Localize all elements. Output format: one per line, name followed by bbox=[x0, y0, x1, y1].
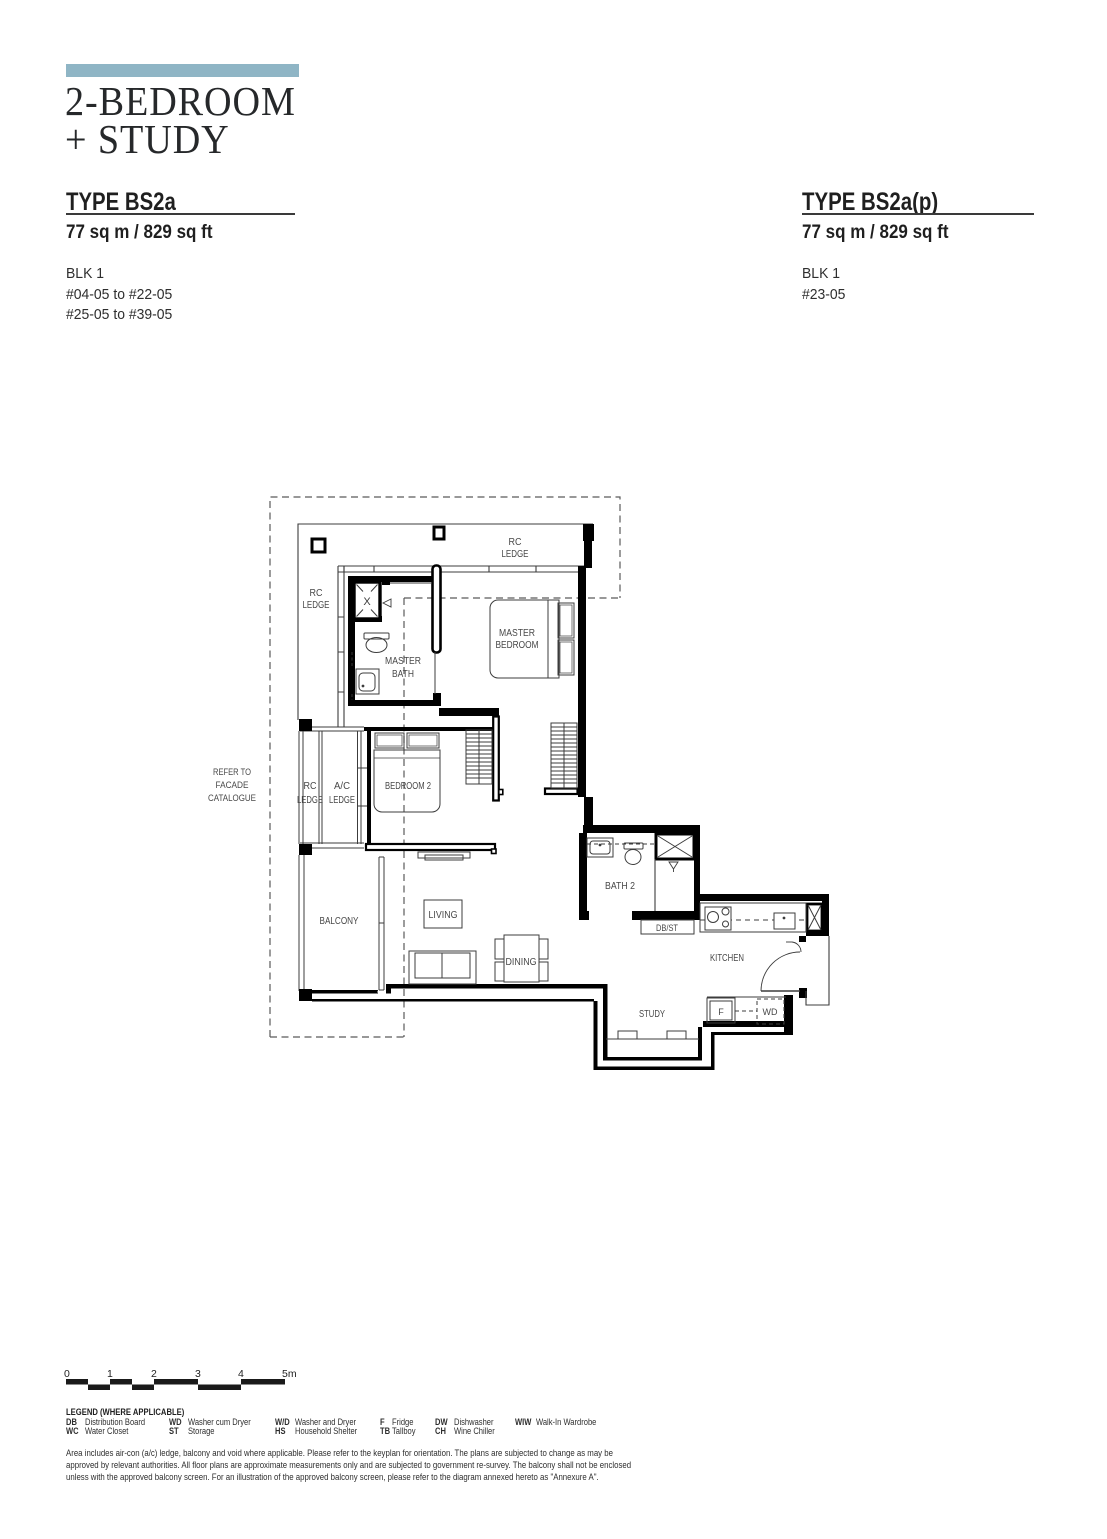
svg-text:3: 3 bbox=[195, 1368, 201, 1380]
svg-text:KITCHEN: KITCHEN bbox=[710, 953, 744, 964]
svg-text:A/C: A/C bbox=[334, 781, 350, 792]
svg-text:RC: RC bbox=[310, 588, 323, 599]
svg-text:2: 2 bbox=[151, 1368, 157, 1380]
svg-text:RC: RC bbox=[509, 537, 522, 548]
svg-text:1: 1 bbox=[107, 1368, 113, 1380]
svg-text:4: 4 bbox=[238, 1368, 244, 1380]
svg-text:F: F bbox=[718, 1007, 724, 1017]
svg-text:STUDY: STUDY bbox=[639, 1009, 665, 1020]
svg-text:5m: 5m bbox=[282, 1368, 297, 1380]
svg-text:X: X bbox=[363, 596, 371, 608]
svg-text:CATALOGUE: CATALOGUE bbox=[208, 793, 256, 803]
svg-text:MASTER: MASTER bbox=[499, 628, 535, 639]
svg-text:RC: RC bbox=[304, 781, 317, 792]
svg-text:BEDROOM: BEDROOM bbox=[496, 640, 539, 651]
svg-text:BATH: BATH bbox=[392, 669, 414, 680]
svg-text:FACADE: FACADE bbox=[216, 780, 249, 790]
svg-text:REFER TO: REFER TO bbox=[213, 767, 251, 777]
svg-text:BALCONY: BALCONY bbox=[320, 916, 359, 927]
svg-text:0: 0 bbox=[64, 1368, 70, 1380]
svg-text:LEDGE: LEDGE bbox=[502, 549, 529, 560]
svg-text:LEDGE: LEDGE bbox=[329, 795, 355, 806]
svg-text:DINING: DINING bbox=[506, 957, 537, 968]
svg-text:WD: WD bbox=[763, 1007, 778, 1017]
svg-text:BEDROOM 2: BEDROOM 2 bbox=[385, 781, 431, 792]
svg-text:LIVING: LIVING bbox=[429, 910, 458, 921]
svg-text:DB/ST: DB/ST bbox=[656, 923, 678, 933]
svg-text:MASTER: MASTER bbox=[385, 656, 421, 667]
svg-text:LEDGE: LEDGE bbox=[303, 600, 330, 611]
svg-text:BATH 2: BATH 2 bbox=[605, 881, 635, 892]
svg-text:LEDGE: LEDGE bbox=[297, 795, 323, 806]
